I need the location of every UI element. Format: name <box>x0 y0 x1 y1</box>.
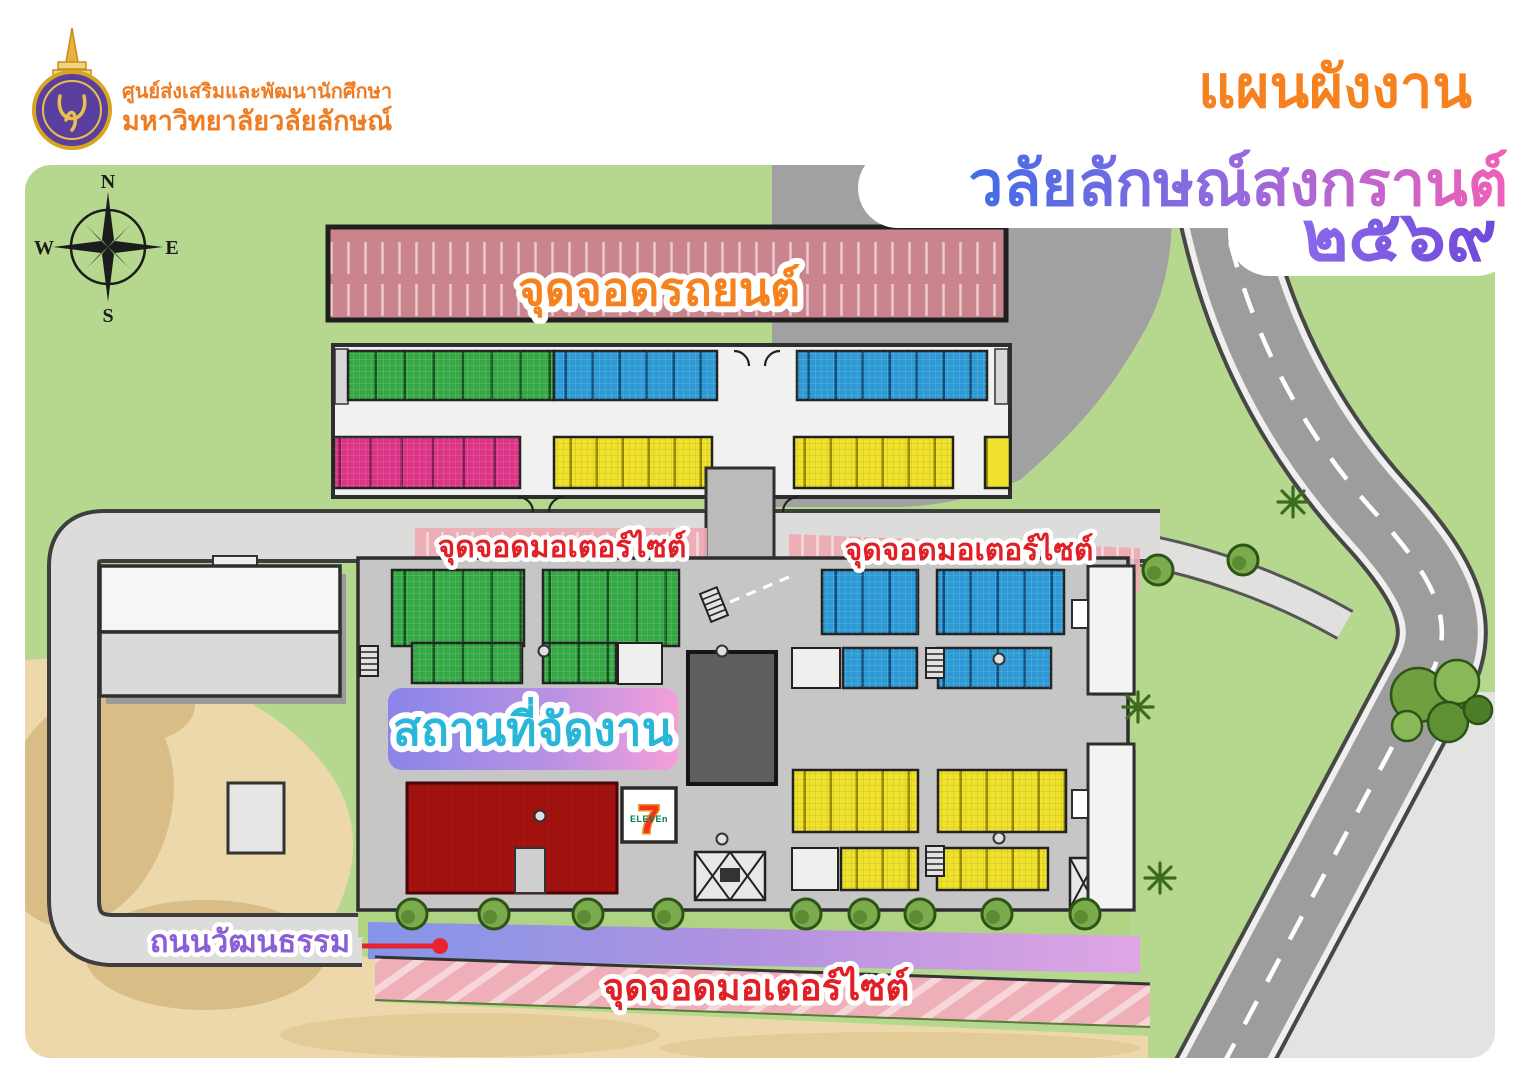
songkran-venue-map-page: 7 ELEVEn <box>0 0 1522 1076</box>
pink-stall-block <box>334 437 520 488</box>
page-title-line1: แผนผังงาน <box>1198 55 1472 120</box>
org-name-line2: มหาวิทยาลัยวลัยลักษณ์ <box>122 105 392 136</box>
left-building <box>100 556 346 704</box>
org-name-line1: ศูนย์ส่งเสริมและพัฒนานักศึกษา <box>122 80 392 105</box>
map-canvas: 7 ELEVEn <box>0 0 1522 1076</box>
seven-eleven-logo: 7 ELEVEn <box>622 788 676 842</box>
car-parking-label: จุดจอดรถยนต์ <box>518 263 800 318</box>
stairs-icon <box>360 646 378 676</box>
event-venue-label: สถานที่จัดงาน <box>393 697 674 755</box>
compass-west-label: W <box>34 237 54 259</box>
stage-building <box>688 652 776 784</box>
university-logo <box>34 28 110 148</box>
eleven-glyph: ELEVEn <box>630 814 668 824</box>
page-title-year: ๒๕๖๙ <box>1302 197 1497 275</box>
culture-road-label: ถนนวัฒนธรรม <box>150 924 350 959</box>
motorcycle-parking-right-label: จุดจอดมอเตอร์ไซต์ <box>845 532 1094 569</box>
canopy-structure <box>695 852 765 900</box>
utility-box <box>792 648 840 688</box>
small-building <box>228 783 284 853</box>
compass-north-label: N <box>101 171 116 193</box>
long-stall-building <box>333 345 1010 512</box>
green-stall-block <box>348 351 554 400</box>
red-zone <box>407 783 617 893</box>
motorcycle-parking-bottom-label: จุดจอดมอเตอร์ไซต์ <box>603 965 910 1011</box>
motorcycle-parking-left-label: จุดจอดมอเตอร์ไซต์ <box>438 529 687 566</box>
utility-box <box>618 643 662 684</box>
utility-box <box>792 848 838 890</box>
stairs-icon <box>926 846 944 876</box>
compass-east-label: E <box>165 237 178 259</box>
stairs-icon <box>926 648 944 678</box>
central-corridor <box>706 468 774 568</box>
compass-south-label: S <box>102 305 113 327</box>
